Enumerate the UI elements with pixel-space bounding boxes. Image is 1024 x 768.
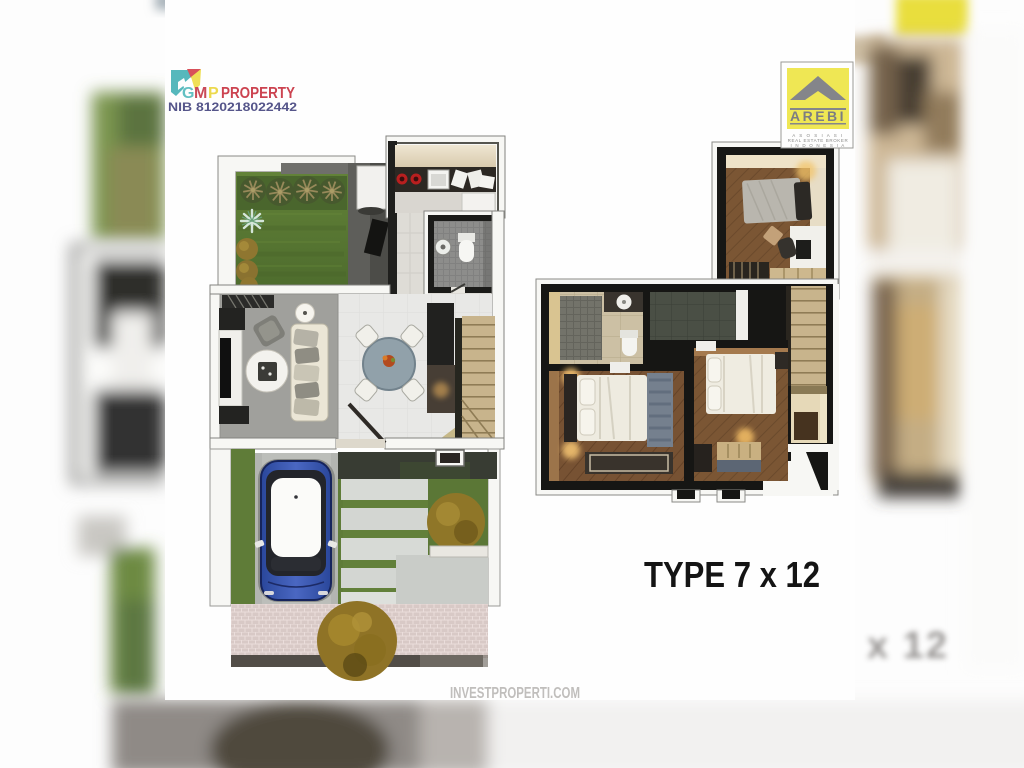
svg-text:AREBI: AREBI — [790, 108, 846, 124]
svg-text:M: M — [194, 85, 207, 102]
svg-text:INVESTPROPERTI.COM: INVESTPROPERTI.COM — [450, 685, 580, 702]
svg-text:NIB 8120218022442: NIB 8120218022442 — [168, 102, 297, 114]
svg-text:TYPE 7 x 12: TYPE 7 x 12 — [644, 554, 820, 595]
svg-text:I N D O N E S I A: I N D O N E S I A — [791, 143, 846, 148]
svg-text:P: P — [208, 85, 219, 102]
svg-text:G: G — [182, 85, 194, 102]
svg-text:x 12: x 12 — [867, 625, 949, 667]
svg-text:PROPERTY: PROPERTY — [221, 85, 295, 102]
